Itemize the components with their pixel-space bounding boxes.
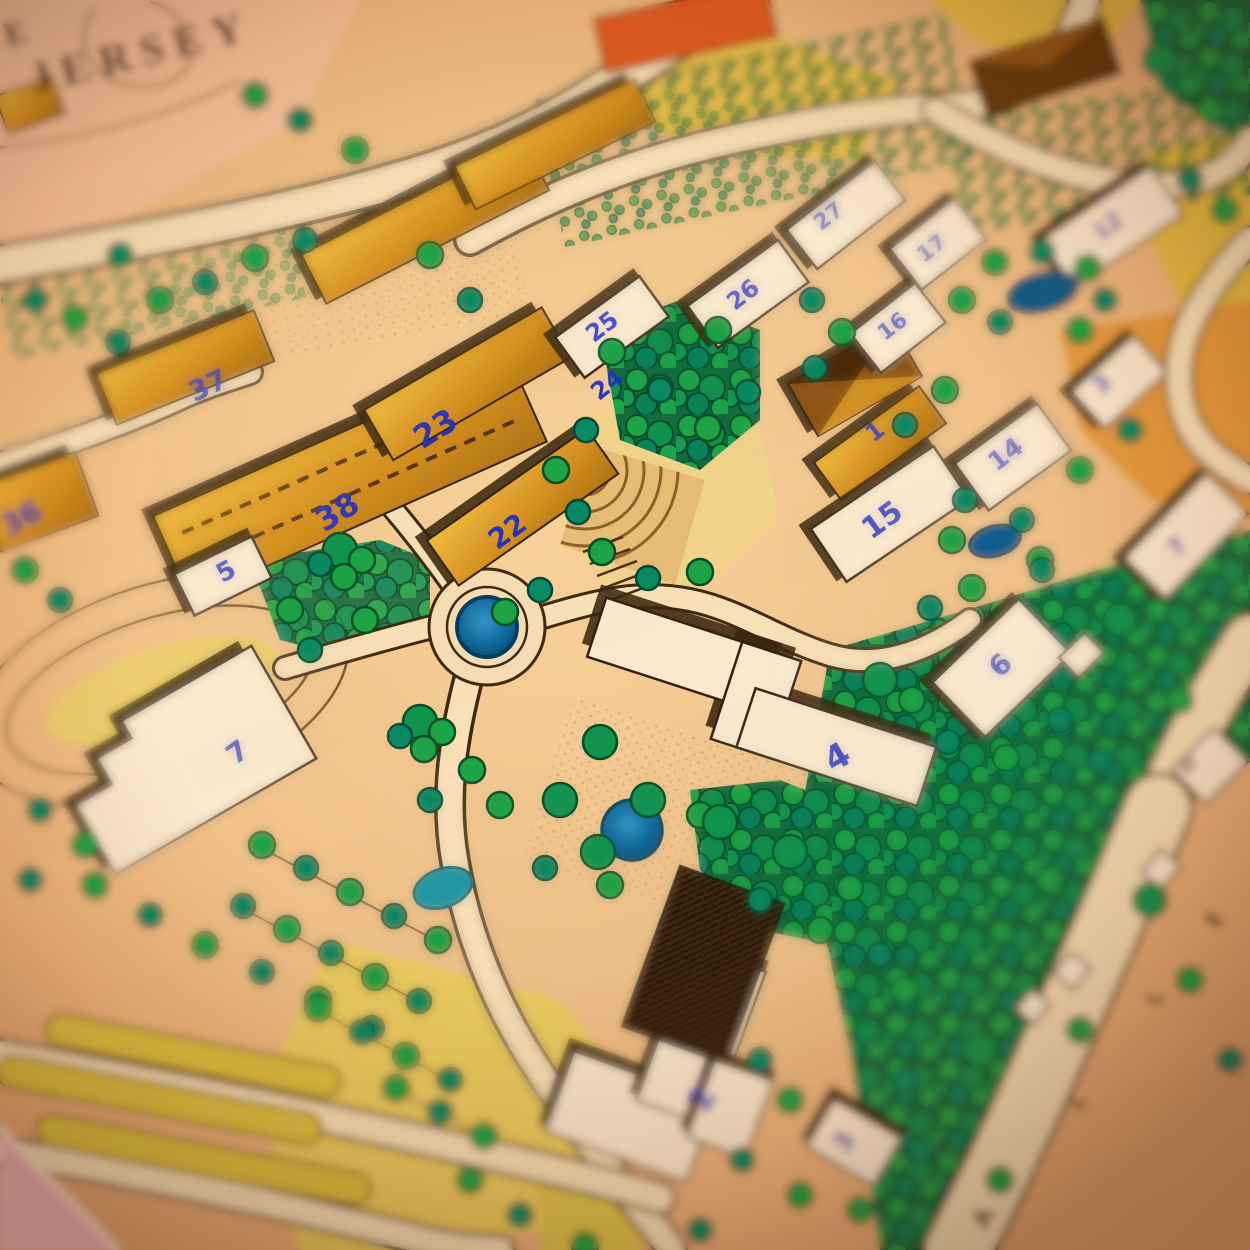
campus-map-photo: 3637233822242526271716121151437645723 DE… bbox=[0, 0, 1250, 1250]
map-scene-svg: 3637233822242526271716121151437645723 DE… bbox=[0, 0, 1250, 1250]
